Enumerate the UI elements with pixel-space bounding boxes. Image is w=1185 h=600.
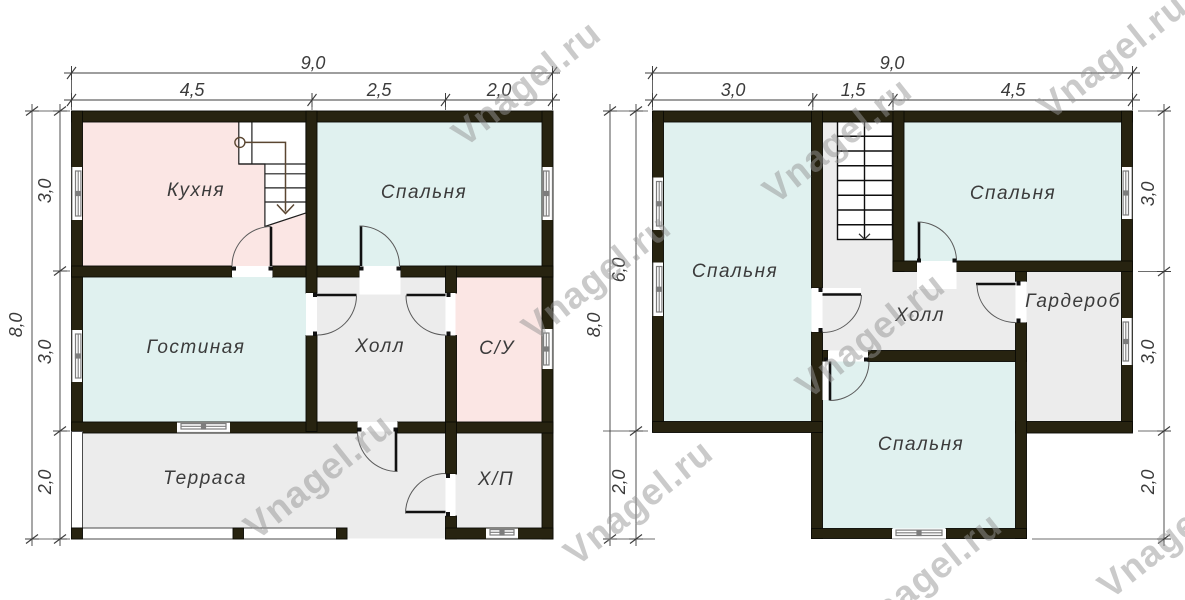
svg-text:4,5: 4,5 [180,80,206,100]
svg-text:Гостиная: Гостиная [147,337,246,358]
svg-text:Спальня: Спальня [381,182,467,203]
svg-text:3,0: 3,0 [35,340,55,365]
svg-text:Спальня: Спальня [878,434,964,455]
svg-text:2,5: 2,5 [366,80,393,100]
svg-text:2,0: 2,0 [35,470,55,496]
svg-text:2,0: 2,0 [1138,470,1158,496]
svg-text:3,0: 3,0 [1138,182,1158,207]
svg-text:Спальня: Спальня [692,261,778,282]
svg-text:3,0: 3,0 [721,80,746,100]
svg-text:Х/П: Х/П [477,469,514,490]
svg-text:3,0: 3,0 [35,179,55,204]
svg-text:4,5: 4,5 [1001,80,1027,100]
svg-text:С/У: С/У [479,338,515,359]
svg-text:8,0: 8,0 [6,313,26,338]
svg-text:Холл: Холл [354,336,405,357]
svg-text:Гардероб: Гардероб [1025,291,1121,312]
svg-text:9,0: 9,0 [301,53,326,73]
svg-text:8,0: 8,0 [584,313,604,338]
svg-text:3,0: 3,0 [1138,340,1158,365]
svg-text:Кухня: Кухня [167,180,225,201]
svg-text:Терраса: Терраса [163,468,247,489]
svg-text:Спальня: Спальня [970,183,1056,204]
